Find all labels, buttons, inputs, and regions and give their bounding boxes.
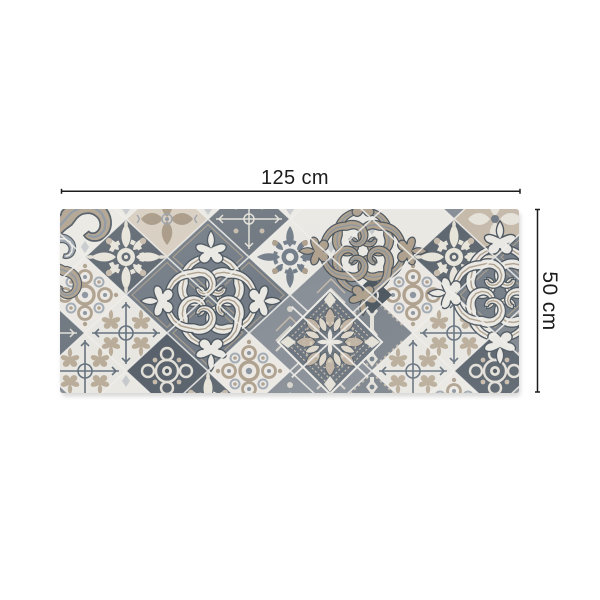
svg-text:125 cm: 125 cm xyxy=(261,167,329,189)
svg-text:50 cm: 50 cm xyxy=(538,271,561,330)
